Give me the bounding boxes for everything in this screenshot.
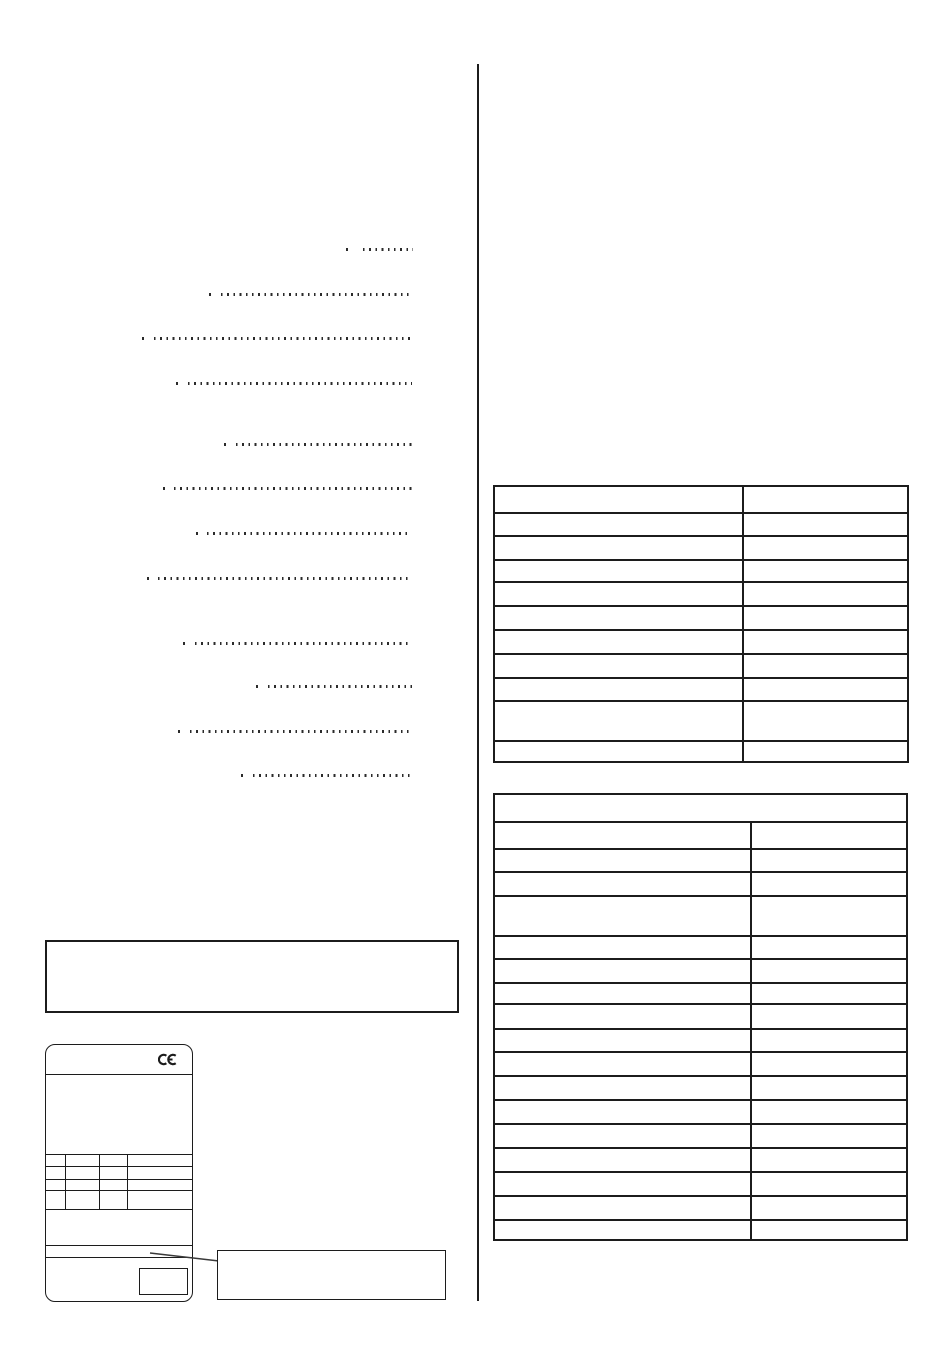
rating-grid-cell bbox=[128, 1180, 192, 1191]
toc-leader-line bbox=[224, 443, 412, 446]
label-bottom-section bbox=[46, 1258, 192, 1301]
table-row bbox=[495, 1003, 906, 1028]
table-row bbox=[495, 700, 907, 740]
table-cell-label bbox=[495, 537, 742, 559]
toc-leader-line bbox=[178, 730, 411, 733]
table-cell-value bbox=[750, 1173, 906, 1195]
callout-pointer-line bbox=[148, 1251, 221, 1263]
table-cell-label bbox=[495, 984, 750, 1003]
table-cell-value bbox=[750, 960, 906, 982]
toc-leader-line bbox=[241, 774, 411, 777]
table-row bbox=[495, 1051, 906, 1075]
table-cell-label bbox=[495, 823, 750, 848]
table-cell-value bbox=[750, 1053, 906, 1075]
leader-period-dot bbox=[346, 248, 348, 251]
column-divider-line bbox=[477, 64, 479, 1301]
table-row bbox=[495, 958, 906, 982]
leader-dot-run bbox=[188, 382, 412, 385]
table-cell-label bbox=[495, 655, 742, 677]
table-row bbox=[495, 629, 907, 653]
leader-period-dot bbox=[241, 774, 243, 777]
table-cell-value bbox=[750, 1125, 906, 1147]
label-rating-grid bbox=[46, 1155, 192, 1210]
table-cell-value bbox=[750, 1197, 906, 1219]
table-row bbox=[495, 535, 907, 559]
rating-grid-cell bbox=[46, 1180, 66, 1191]
table-cell-value bbox=[750, 873, 906, 895]
table-cell-value bbox=[742, 537, 907, 559]
table-row bbox=[495, 871, 906, 895]
table-cell-value bbox=[750, 1030, 906, 1051]
rating-grid-cell bbox=[66, 1180, 100, 1191]
rating-grid-cell bbox=[46, 1191, 66, 1210]
table-row bbox=[495, 935, 906, 958]
note-box bbox=[45, 940, 459, 1013]
table-cell-label bbox=[495, 487, 742, 512]
table-header-cell bbox=[495, 795, 906, 821]
label-serial-box bbox=[139, 1268, 188, 1295]
leader-period-dot bbox=[163, 487, 165, 490]
table-row bbox=[495, 740, 907, 763]
toc-leader-line bbox=[209, 293, 412, 296]
rating-grid-cell bbox=[100, 1155, 128, 1167]
rating-grid-cell bbox=[66, 1191, 100, 1210]
leader-period-dot bbox=[176, 382, 178, 385]
table-cell-label bbox=[495, 850, 750, 871]
leader-period-dot bbox=[178, 730, 180, 733]
rating-grid-cell bbox=[46, 1155, 66, 1167]
table-cell-value bbox=[750, 1005, 906, 1028]
table-cell-value bbox=[750, 937, 906, 958]
leader-period-dot bbox=[256, 685, 258, 688]
rating-grid-cell bbox=[128, 1191, 192, 1210]
table-cell-label bbox=[495, 1030, 750, 1051]
table-cell-label bbox=[495, 937, 750, 958]
table-cell-label bbox=[495, 1197, 750, 1219]
table-row bbox=[495, 1147, 906, 1171]
leader-dot-run bbox=[174, 487, 412, 490]
table-cell-value bbox=[742, 679, 907, 700]
table-cell-label bbox=[495, 679, 742, 700]
table-cell-label bbox=[495, 960, 750, 982]
leader-period-dot bbox=[209, 293, 211, 296]
table-cell-label bbox=[495, 702, 742, 740]
table-row bbox=[495, 821, 906, 848]
table-cell-value bbox=[742, 631, 907, 653]
table-cell-value bbox=[750, 1149, 906, 1171]
table-cell-label bbox=[495, 742, 742, 763]
table-cell-value bbox=[750, 1077, 906, 1099]
table-cell-value bbox=[750, 850, 906, 871]
table-row bbox=[495, 512, 907, 535]
leader-dot-run bbox=[195, 642, 412, 645]
table-cell-value bbox=[742, 607, 907, 629]
leader-period-dot bbox=[147, 577, 149, 580]
toc-leader-line bbox=[196, 532, 411, 535]
table-row bbox=[495, 1123, 906, 1147]
table-cell-value bbox=[742, 702, 907, 740]
table-cell-label bbox=[495, 561, 742, 581]
ce-mark-row bbox=[46, 1045, 192, 1075]
table-cell-label bbox=[495, 1005, 750, 1028]
leader-period-dot bbox=[224, 443, 226, 446]
leader-dot-run bbox=[207, 532, 411, 535]
table-cell-value bbox=[742, 655, 907, 677]
leader-dot-run bbox=[268, 685, 412, 688]
table-cell-value bbox=[742, 514, 907, 535]
table-cell-label bbox=[495, 1221, 750, 1241]
table-cell-label bbox=[495, 607, 742, 629]
table-cell-label bbox=[495, 897, 750, 935]
toc-leader-line bbox=[183, 642, 412, 645]
table-row bbox=[495, 605, 907, 629]
leader-period-dot bbox=[142, 337, 144, 340]
leader-dot-run bbox=[154, 337, 412, 340]
leader-dot-run bbox=[158, 577, 412, 580]
label-spacer-section bbox=[46, 1210, 192, 1246]
table-cell-value bbox=[742, 742, 907, 763]
rating-plate-label bbox=[45, 1044, 193, 1302]
table-cell-value bbox=[742, 561, 907, 581]
table-cell-label bbox=[495, 631, 742, 653]
leader-dot-run bbox=[236, 443, 412, 446]
rating-grid-cell bbox=[100, 1191, 128, 1210]
rating-grid-cell bbox=[128, 1155, 192, 1167]
ce-mark-icon bbox=[158, 1053, 178, 1066]
table-row bbox=[495, 1099, 906, 1123]
rating-grid-cell bbox=[128, 1167, 192, 1180]
table-row bbox=[495, 1075, 906, 1099]
label-body-section bbox=[46, 1075, 192, 1155]
toc-leader-line bbox=[346, 248, 413, 251]
leader-period-dot bbox=[183, 642, 185, 645]
table-cell-label bbox=[495, 1149, 750, 1171]
toc-leader-line bbox=[163, 487, 412, 490]
spec-table-bottom bbox=[493, 793, 908, 1241]
table-row bbox=[495, 1219, 906, 1241]
table-cell-value bbox=[742, 487, 907, 512]
table-row bbox=[495, 677, 907, 700]
table-row bbox=[495, 487, 907, 512]
leader-dot-run bbox=[253, 774, 411, 777]
table-cell-value bbox=[750, 897, 906, 935]
rating-grid-cell bbox=[66, 1167, 100, 1180]
toc-leader-line bbox=[256, 685, 412, 688]
leader-dot-run bbox=[363, 248, 413, 251]
table-cell-label bbox=[495, 514, 742, 535]
table-cell-value bbox=[750, 1101, 906, 1123]
table-cell-label bbox=[495, 873, 750, 895]
rating-grid-cell bbox=[46, 1167, 66, 1180]
rating-grid-cell bbox=[66, 1155, 100, 1167]
table-cell-value bbox=[750, 823, 906, 848]
leader-dot-run bbox=[190, 730, 411, 733]
leader-period-dot bbox=[196, 532, 198, 535]
table-cell-value bbox=[750, 1221, 906, 1241]
table-row bbox=[495, 559, 907, 581]
table-row bbox=[495, 848, 906, 871]
table-cell-label bbox=[495, 1125, 750, 1147]
table-cell-value bbox=[750, 984, 906, 1003]
table-cell-label bbox=[495, 583, 742, 605]
table-row bbox=[495, 653, 907, 677]
table-cell-label bbox=[495, 1053, 750, 1075]
rating-grid-cell bbox=[100, 1180, 128, 1191]
spec-table-top bbox=[493, 485, 909, 763]
rating-grid-cell bbox=[100, 1167, 128, 1180]
table-cell-label bbox=[495, 1101, 750, 1123]
callout-box bbox=[217, 1250, 446, 1300]
table-row bbox=[495, 581, 907, 605]
leader-dot-run bbox=[221, 293, 412, 296]
table-row bbox=[495, 1028, 906, 1051]
toc-leader-line bbox=[147, 577, 412, 580]
table-cell-label bbox=[495, 1173, 750, 1195]
toc-leader-line bbox=[142, 337, 412, 340]
toc-leader-line bbox=[176, 382, 412, 385]
table-row bbox=[495, 1195, 906, 1219]
table-cell-label bbox=[495, 1077, 750, 1099]
table-row bbox=[495, 895, 906, 935]
table-row bbox=[495, 1171, 906, 1195]
table-cell-value bbox=[742, 583, 907, 605]
table-row bbox=[495, 982, 906, 1003]
document-page bbox=[0, 0, 950, 1370]
